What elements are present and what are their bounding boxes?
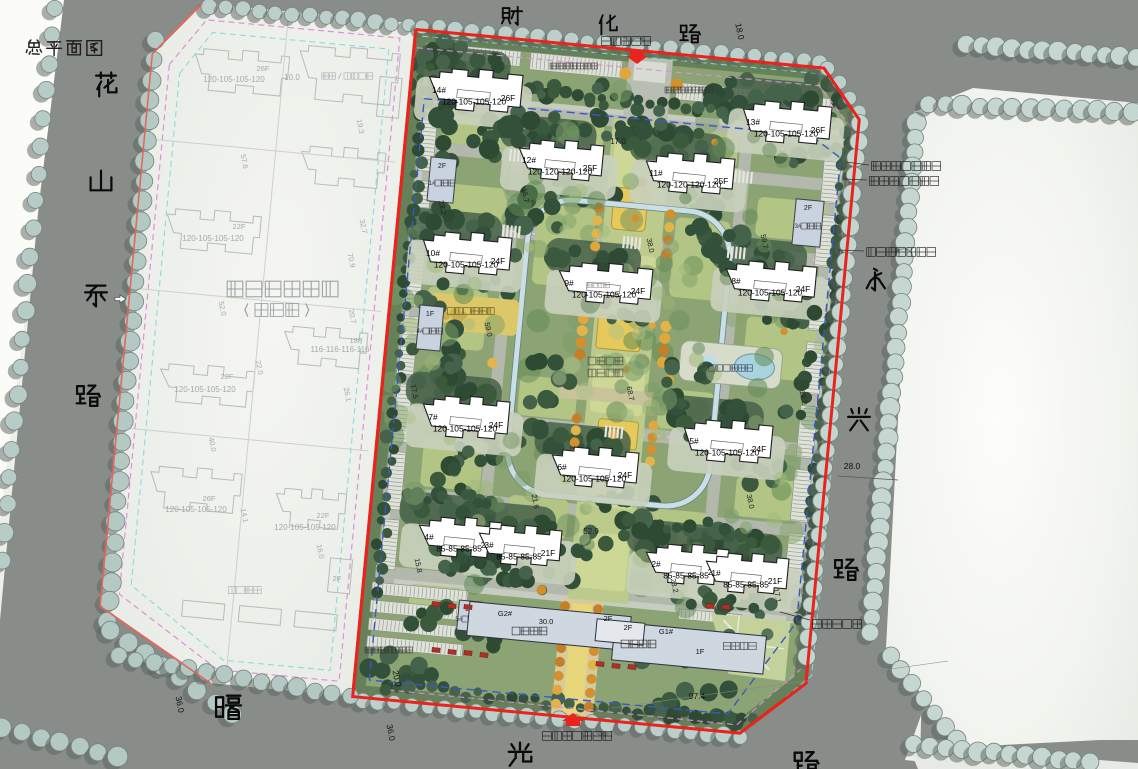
- svg-text:1F: 1F: [426, 311, 434, 318]
- svg-text:85-85-85-85: 85-85-85-85: [436, 544, 482, 554]
- svg-text:120-105-105-120: 120-105-105-120: [562, 474, 627, 484]
- svg-text:11#: 11#: [649, 168, 663, 178]
- svg-text:5#: 5#: [689, 436, 699, 446]
- svg-text:4#: 4#: [424, 532, 434, 542]
- svg-text:116-116-116-116: 116-116-116-116: [310, 345, 370, 354]
- svg-text:2F: 2F: [438, 163, 446, 170]
- svg-text:8#: 8#: [731, 276, 741, 286]
- svg-text:22F: 22F: [221, 372, 234, 381]
- svg-text:21F: 21F: [768, 576, 782, 586]
- svg-text:120-105-105-120: 120-105-105-120: [174, 385, 236, 394]
- svg-text:120-105-105-120: 120-105-105-120: [165, 505, 227, 514]
- svg-text:120-105-105-120: 120-105-105-120: [203, 75, 265, 84]
- svg-text:1F: 1F: [696, 647, 705, 656]
- svg-text:17.0: 17.0: [610, 137, 626, 146]
- svg-text:120-105-105-120: 120-105-105-120: [442, 97, 507, 107]
- svg-text:22F: 22F: [317, 511, 330, 520]
- svg-text:2#: 2#: [651, 559, 661, 569]
- svg-text:7#: 7#: [428, 412, 438, 422]
- svg-text:120-105-105-120: 120-105-105-120: [754, 129, 819, 139]
- svg-text:120-120-120-120: 120-120-120-120: [657, 180, 722, 190]
- svg-text:1#: 1#: [711, 568, 721, 578]
- svg-text:12#: 12#: [522, 155, 536, 165]
- svg-text:18F: 18F: [350, 336, 363, 345]
- svg-text:2F: 2F: [333, 574, 342, 583]
- svg-text:120-105-105-120: 120-105-105-120: [274, 523, 336, 532]
- svg-text:2F: 2F: [624, 623, 633, 632]
- svg-text:120-120-120-120: 120-120-120-120: [528, 167, 593, 177]
- svg-text:2F: 2F: [804, 205, 812, 212]
- svg-text:85-85-85-85: 85-85-85-85: [496, 552, 542, 562]
- svg-text:26F: 26F: [203, 494, 216, 503]
- svg-text:120-105-105-120: 120-105-105-120: [572, 290, 637, 300]
- svg-text:28.0: 28.0: [844, 461, 861, 471]
- svg-text:120-105-105-120: 120-105-105-120: [182, 234, 244, 243]
- svg-text:10.0: 10.0: [284, 73, 300, 82]
- svg-text:6#: 6#: [557, 462, 567, 472]
- svg-text:30.0: 30.0: [539, 617, 554, 626]
- svg-text:9#: 9#: [564, 278, 574, 288]
- svg-text:120-105-105-120: 120-105-105-120: [695, 448, 760, 458]
- svg-text:G1#: G1#: [659, 627, 674, 636]
- svg-text:120-105-105-120: 120-105-105-120: [433, 424, 498, 434]
- svg-text:21F: 21F: [541, 548, 555, 558]
- svg-text:13#: 13#: [746, 117, 760, 127]
- svg-text:2F: 2F: [604, 614, 613, 623]
- svg-text:85-85-85-85: 85-85-85-85: [723, 580, 769, 590]
- svg-text:10#: 10#: [426, 248, 440, 258]
- svg-text:22F: 22F: [233, 222, 246, 231]
- svg-text:120-105-105-120: 120-105-105-120: [434, 260, 499, 270]
- svg-text:3#: 3#: [484, 540, 494, 550]
- svg-text:52.9: 52.9: [583, 527, 599, 536]
- svg-text:26F: 26F: [257, 64, 270, 73]
- svg-text:G2#: G2#: [498, 609, 513, 618]
- svg-text:120-105-105-120: 120-105-105-120: [738, 288, 803, 298]
- svg-text:14#: 14#: [432, 85, 446, 95]
